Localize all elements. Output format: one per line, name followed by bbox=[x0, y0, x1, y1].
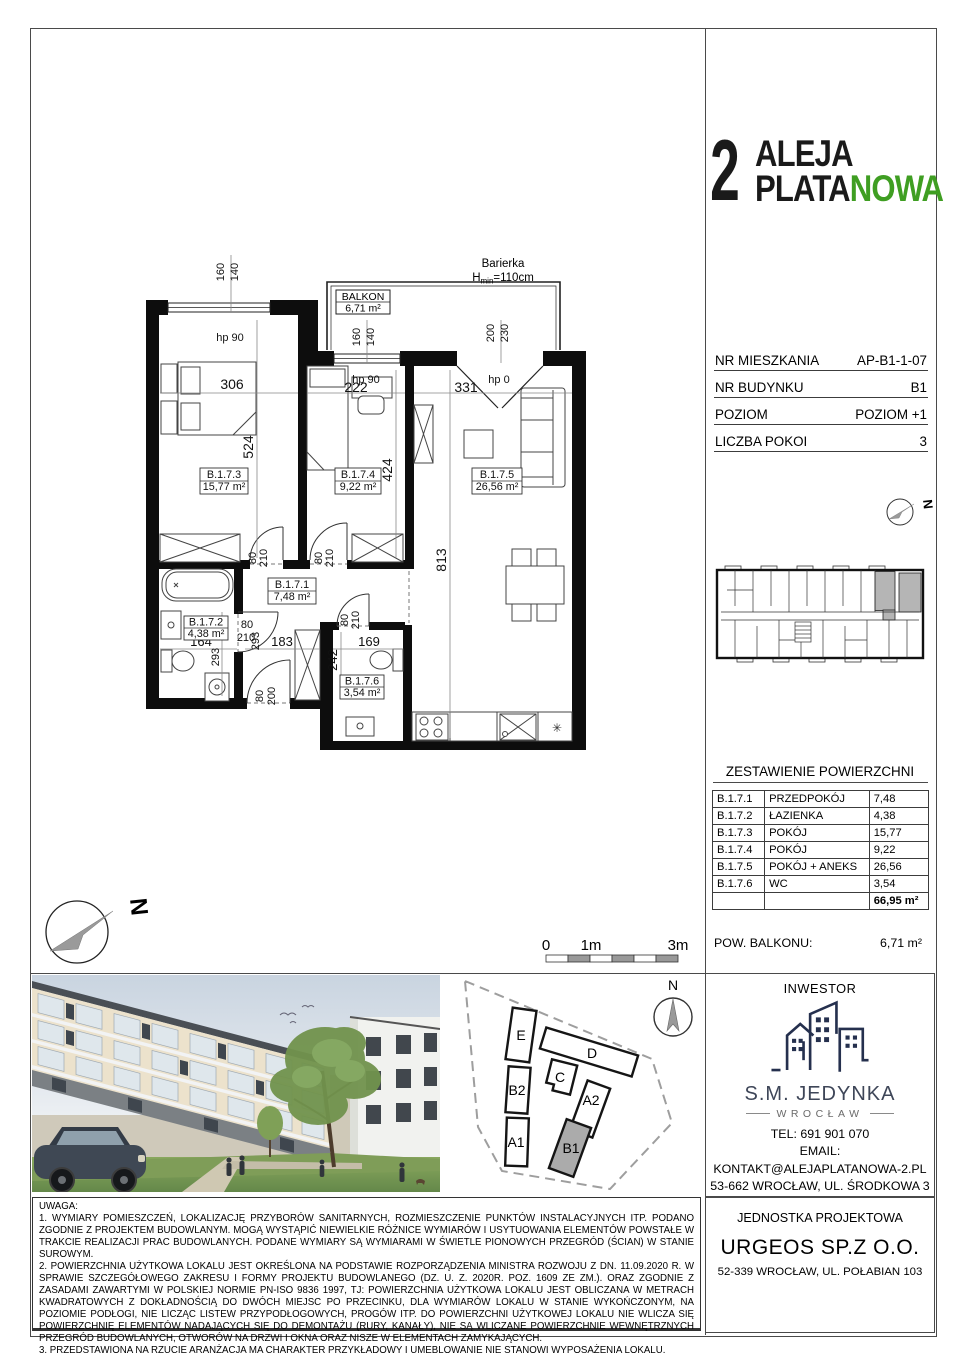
logo-wordmark: ALEJA PLATANOWA bbox=[755, 137, 943, 205]
note-item: 1. WYMIARY POMIESZCZEŃ, LOKALIZACJĘ PRZY… bbox=[39, 1213, 694, 1261]
info-label: POZIOM bbox=[715, 407, 768, 422]
apartment-info-table: NR MIESZKANIA AP-B1-1-07 NR BUDYNKU B1 P… bbox=[714, 344, 928, 452]
investor-logo-icon bbox=[758, 996, 882, 1082]
dim-label: 80 bbox=[241, 619, 253, 631]
info-value: POZIOM +1 bbox=[855, 407, 927, 422]
dim-label: 222 bbox=[344, 379, 368, 395]
room-id: B.1.7.5 bbox=[480, 469, 514, 481]
info-label: NR BUDYNKU bbox=[715, 380, 804, 395]
info-row-poziom: POZIOM POZIOM +1 bbox=[714, 398, 928, 425]
dim-label: 524 bbox=[240, 435, 256, 459]
north-label: N bbox=[668, 977, 678, 993]
dim-label: hp 0 bbox=[488, 374, 509, 386]
svg-text:6,71 m²: 6,71 m² bbox=[345, 303, 381, 315]
logo-line2: PLATANOWA bbox=[755, 172, 943, 206]
logo-number: 2 bbox=[710, 138, 740, 205]
wardrobe bbox=[414, 405, 433, 463]
room-id: B.1.7.1 bbox=[275, 579, 309, 591]
balcony-area-value: 6,71 m² bbox=[880, 936, 922, 950]
building-label: B1 bbox=[562, 1140, 579, 1156]
logo-line2-black: PLATA bbox=[755, 168, 850, 209]
room-label: B.1.7.2 4,38 m² bbox=[184, 616, 228, 640]
dim-label: 293 bbox=[250, 632, 262, 650]
logo-line1: ALEJA bbox=[755, 137, 943, 171]
bathroom-sink bbox=[161, 611, 181, 639]
investor-email-label: EMAIL: bbox=[710, 1143, 929, 1161]
dim-label: 306 bbox=[220, 376, 244, 392]
brand-logo: 2 ALEJA PLATANOWA bbox=[701, 124, 939, 219]
table-row: B.1.7.3POKÓJ15,77 bbox=[713, 825, 929, 842]
building-label: B2 bbox=[508, 1082, 525, 1098]
dim-label: 140 bbox=[229, 263, 241, 281]
stove bbox=[416, 714, 448, 740]
barierka-height-label: Hmin=110cm bbox=[472, 272, 534, 286]
design-unit-address: 52-339 WROCŁAW, UL. POŁABIAN 103 bbox=[718, 1266, 923, 1278]
dim-label: 331 bbox=[454, 379, 478, 395]
decorative-dash bbox=[746, 1113, 770, 1114]
info-label: NR MIESZKANIA bbox=[715, 353, 819, 368]
room-area: 4,38 m² bbox=[188, 628, 225, 640]
table-row: B.1.7.4POKÓJ9,22 bbox=[713, 842, 929, 859]
room-id-cell: B.1.7.2 bbox=[713, 808, 765, 825]
wc-toilet bbox=[370, 649, 403, 671]
design-unit-name: URGEOS SP.Z O.O. bbox=[721, 1236, 920, 1260]
table-total-row: 66,95 m² bbox=[713, 893, 929, 910]
logo-line2-green: NOWA bbox=[850, 168, 943, 209]
decorative-dash bbox=[870, 1113, 894, 1114]
area-table-title: ZESTAWIENIE POWIERZCHNI bbox=[705, 764, 935, 779]
building-level-minimap: N bbox=[705, 460, 935, 690]
balkon-label: BALKON 6,71 m² bbox=[336, 290, 390, 315]
toilet bbox=[161, 650, 194, 672]
dim-label: 80 bbox=[254, 690, 266, 702]
info-value: B1 bbox=[911, 380, 927, 395]
investor-email: KONTAKT@ALEJAPLATANOWA-2.PL bbox=[710, 1161, 929, 1179]
info-label: LICZBA POKOI bbox=[715, 434, 807, 449]
north-compass-icon: N bbox=[654, 977, 692, 1036]
note-item: 3. PRZEDSTAWIONA NA RZUCIE ARANŻACJA MA … bbox=[39, 1345, 694, 1357]
notes-title: UWAGA: bbox=[39, 1201, 694, 1213]
scale-3m: 3m bbox=[668, 937, 689, 954]
room-area-cell: 4,38 bbox=[869, 808, 928, 825]
room-area-cell: 15,77 bbox=[869, 825, 928, 842]
sofa bbox=[521, 388, 565, 487]
dim-label: 140 bbox=[365, 328, 377, 346]
building-label: E bbox=[516, 1027, 525, 1043]
design-unit-title: JEDNOSTKA PROJEKTOWA bbox=[737, 1211, 903, 1225]
room-label: B.1.7.3 15,77 m² bbox=[200, 468, 248, 494]
room-area-cell: 3,54 bbox=[869, 876, 928, 893]
table-row: B.1.7.2ŁAZIENKA4,38 bbox=[713, 808, 929, 825]
dim-label: 160 bbox=[215, 263, 227, 281]
investor-city-row: WROCŁAW bbox=[746, 1108, 893, 1120]
investor-city: WROCŁAW bbox=[776, 1108, 863, 1120]
empty-cell bbox=[765, 893, 870, 910]
table-row: B.1.7.1PRZEDPOKÓJ7,48 bbox=[713, 791, 929, 808]
area-title-underline bbox=[713, 782, 928, 783]
site-map: E D C B2 A2 A1 B1 N bbox=[440, 975, 705, 1192]
dim-label: 230 bbox=[499, 324, 511, 342]
dim-label: 210 bbox=[258, 549, 270, 567]
dim-label: 160 bbox=[351, 328, 363, 346]
bed-double bbox=[161, 362, 256, 435]
table-row: B.1.7.5POKÓJ + ANEKS26,56 bbox=[713, 859, 929, 876]
north-label: N bbox=[920, 499, 935, 510]
room-label: B.1.7.5 26,56 m² bbox=[472, 468, 522, 494]
room-name-cell: PRZEDPOKÓJ bbox=[765, 791, 870, 808]
dim-label: 169 bbox=[358, 634, 380, 649]
empty-cell bbox=[713, 893, 765, 910]
floorplan-sheet: Barierka Hmin=110cm BALKON 6,71 m² bbox=[0, 0, 963, 1362]
scale-bar: 0 1m 3m bbox=[542, 937, 689, 962]
investor-section: INWESTOR S.M. JEDYNKA WROCŁAW bbox=[705, 973, 935, 1197]
balcony-area-label: POW. BALKONU: bbox=[714, 936, 812, 950]
dim-label: 200 bbox=[485, 324, 497, 342]
hall-wardrobe bbox=[295, 630, 320, 700]
investor-address: 53-662 WROCŁAW, UL. ŚRODKOWA 3 bbox=[710, 1178, 929, 1196]
investor-phone: TEL: 691 901 070 bbox=[710, 1126, 929, 1144]
room-area: 7,48 m² bbox=[274, 591, 311, 603]
kitchen-sink bbox=[500, 714, 536, 740]
balcony-area-row: POW. BALKONU: 6,71 m² bbox=[714, 936, 922, 950]
room-area-cell: 7,48 bbox=[869, 791, 928, 808]
north-label: N bbox=[124, 897, 153, 917]
scale-1m: 1m bbox=[581, 937, 602, 954]
dim-label: 200 bbox=[266, 687, 278, 705]
coffee-table bbox=[464, 430, 493, 458]
dim-label: hp 90 bbox=[216, 332, 244, 344]
room-id-cell: B.1.7.5 bbox=[713, 859, 765, 876]
room-id-cell: B.1.7.4 bbox=[713, 842, 765, 859]
washing-machine bbox=[205, 673, 229, 701]
design-unit-section: JEDNOSTKA PROJEKTOWA URGEOS SP.Z O.O. 52… bbox=[705, 1197, 935, 1333]
room-name-cell: POKÓJ bbox=[765, 825, 870, 842]
total-area-cell: 66,95 m² bbox=[869, 893, 928, 910]
room-id-cell: B.1.7.1 bbox=[713, 791, 765, 808]
room-id: B.1.7.2 bbox=[189, 617, 223, 629]
building-render-photo bbox=[32, 975, 440, 1192]
info-row-liczba-pokoi: LICZBA POKOI 3 bbox=[714, 425, 928, 452]
building-label: D bbox=[587, 1045, 597, 1061]
area-table: B.1.7.1PRZEDPOKÓJ7,48 B.1.7.2ŁAZIENKA4,3… bbox=[712, 790, 929, 910]
room-area: 26,56 m² bbox=[476, 481, 519, 493]
stairwell bbox=[795, 622, 811, 642]
investor-name: S.M. JEDYNKA bbox=[745, 1083, 896, 1106]
info-row-nr-budynku: NR BUDYNKU B1 bbox=[714, 371, 928, 398]
room-id-cell: B.1.7.3 bbox=[713, 825, 765, 842]
compass-icon: N bbox=[887, 499, 935, 525]
room-label: B.1.7.4 9,22 m² bbox=[335, 468, 381, 494]
room-label: B.1.7.1 7,48 m² bbox=[268, 578, 316, 604]
dim-label: 242 bbox=[325, 649, 340, 671]
dim-label: 210 bbox=[324, 549, 336, 567]
apartment-floorplan: Barierka Hmin=110cm BALKON 6,71 m² bbox=[30, 28, 705, 973]
room-name-cell: WC bbox=[765, 876, 870, 893]
room-area: 9,22 m² bbox=[340, 481, 377, 493]
room-name-cell: ŁAZIENKA bbox=[765, 808, 870, 825]
svg-text:BALKON: BALKON bbox=[342, 291, 385, 303]
scale-0: 0 bbox=[542, 937, 550, 954]
room-id: B.1.7.3 bbox=[207, 469, 241, 481]
wardrobe bbox=[160, 534, 240, 562]
room-area-cell: 9,22 bbox=[869, 842, 928, 859]
room-area-cell: 26,56 bbox=[869, 859, 928, 876]
room-id-cell: B.1.7.6 bbox=[713, 876, 765, 893]
room-label: B.1.7.6 3,54 m² bbox=[340, 675, 384, 699]
room-id: B.1.7.4 bbox=[341, 469, 375, 481]
info-value: 3 bbox=[920, 434, 927, 449]
wardrobe bbox=[352, 534, 403, 562]
room-name-cell: POKÓJ + ANEKS bbox=[765, 859, 870, 876]
room-name-cell: POKÓJ bbox=[765, 842, 870, 859]
building-outline bbox=[717, 566, 923, 662]
note-item: 2. POWIERZCHNIA UŻYTKOWA LOKALU JEST OKR… bbox=[39, 1261, 694, 1345]
room-area: 3,54 m² bbox=[344, 687, 381, 699]
building-label: C bbox=[555, 1069, 565, 1085]
notes-section: UWAGA: 1. WYMIARY POMIESZCZEŃ, LOKALIZAC… bbox=[32, 1197, 701, 1331]
dim-label: 813 bbox=[433, 548, 449, 572]
compass-icon: N bbox=[46, 897, 153, 963]
table-row: B.1.7.6WC3,54 bbox=[713, 876, 929, 893]
info-row-nr-mieszkania: NR MIESZKANIA AP-B1-1-07 bbox=[714, 344, 928, 371]
info-value: AP-B1-1-07 bbox=[857, 353, 927, 368]
dim-label: 293 bbox=[210, 648, 222, 666]
dim-label: 210 bbox=[350, 611, 362, 629]
room-id: B.1.7.6 bbox=[345, 676, 379, 688]
investor-title: INWESTOR bbox=[784, 981, 857, 996]
room-area: 15,77 m² bbox=[203, 481, 246, 493]
building-label: A2 bbox=[582, 1092, 599, 1108]
bathtub bbox=[162, 569, 233, 601]
bed-single bbox=[307, 366, 348, 470]
plant-icon: ✳ bbox=[552, 721, 562, 735]
barierka-label: Barierka bbox=[482, 258, 525, 270]
dim-label: 183 bbox=[271, 634, 293, 649]
building-label: A1 bbox=[507, 1134, 524, 1150]
wc-sink bbox=[346, 717, 374, 736]
dining-set bbox=[506, 549, 564, 621]
